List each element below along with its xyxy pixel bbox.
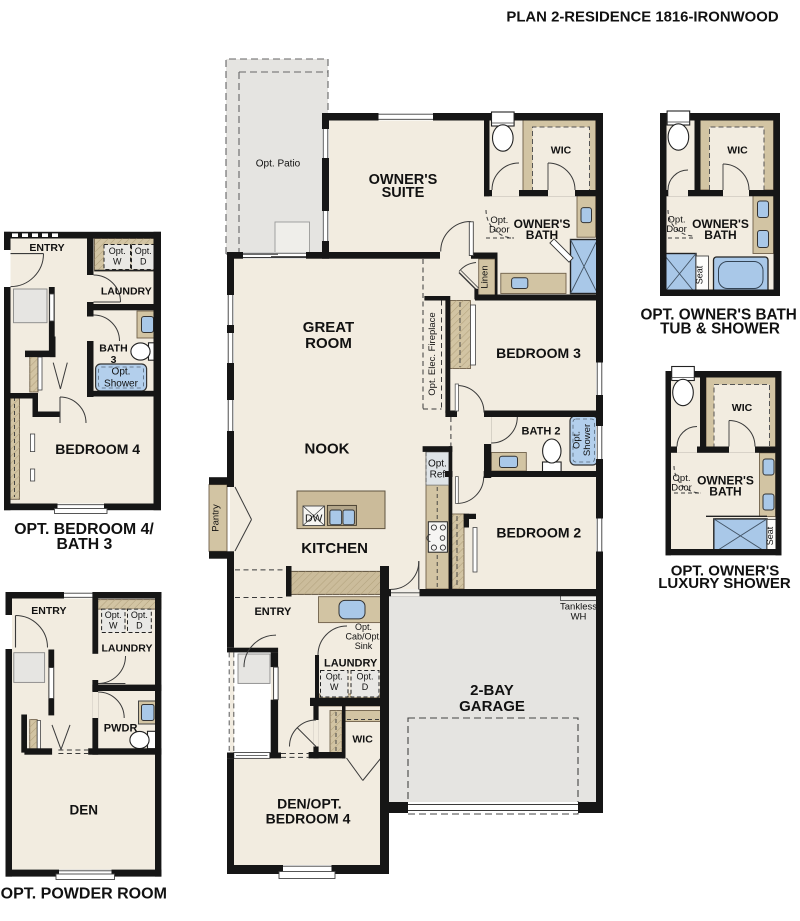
svg-text:Opt.: Opt. [105,610,122,620]
svg-text:LAUNDRY: LAUNDRY [102,643,153,655]
svg-text:ENTRY: ENTRY [29,242,64,254]
svg-text:ROOM: ROOM [305,335,352,352]
svg-text:BATH 3: BATH 3 [56,536,112,553]
svg-text:W: W [109,621,118,631]
svg-text:GREAT: GREAT [303,319,354,336]
svg-text:BEDROOM 2: BEDROOM 2 [496,525,581,541]
svg-text:WIC: WIC [551,145,572,157]
svg-text:Pantry: Pantry [211,504,222,532]
svg-text:Opt.: Opt. [326,672,343,682]
svg-text:D: D [136,621,143,631]
svg-text:ENTRY: ENTRY [254,606,292,618]
svg-text:GARAGE: GARAGE [459,698,525,715]
svg-text:W: W [113,257,122,267]
svg-text:W: W [330,682,339,692]
svg-text:Linen: Linen [480,265,491,288]
svg-text:KITCHEN: KITCHEN [301,540,368,557]
svg-text:SUITE: SUITE [382,185,425,201]
svg-text:Ref: Ref [430,470,446,481]
svg-text:TUB & SHOWER: TUB & SHOWER [660,320,780,337]
svg-text:LAUNDRY: LAUNDRY [101,286,152,298]
svg-text:WH: WH [571,612,587,623]
svg-text:PLAN 2-RESIDENCE 1816-IRONWOOD: PLAN 2-RESIDENCE 1816-IRONWOOD [506,10,778,26]
svg-text:LAUNDRY: LAUNDRY [324,658,378,670]
svg-text:D: D [362,682,369,692]
svg-text:PWDR: PWDR [104,723,138,735]
svg-text:Door: Door [666,224,687,235]
svg-text:3: 3 [111,354,117,366]
svg-text:Opt.: Opt. [112,367,131,378]
svg-text:Opt.: Opt. [131,610,148,620]
svg-text:Opt. Patio: Opt. Patio [256,159,301,170]
svg-text:Opt.: Opt. [109,246,126,256]
svg-text:Opt.: Opt. [356,672,373,682]
svg-text:Opt.: Opt. [572,431,583,449]
svg-text:Opt.: Opt. [355,622,372,632]
svg-text:BEDROOM 4: BEDROOM 4 [55,441,140,457]
svg-text:Door: Door [489,225,510,236]
svg-text:BEDROOM 3: BEDROOM 3 [496,345,581,361]
svg-text:D: D [140,257,147,267]
svg-text:BATH: BATH [99,343,127,355]
svg-text:ENTRY: ENTRY [31,605,66,617]
svg-text:Shower: Shower [582,424,593,456]
svg-text:Sink: Sink [355,641,373,651]
svg-text:NOOK: NOOK [305,441,350,458]
svg-text:Cab/Opt.: Cab/Opt. [345,632,381,642]
svg-text:BATH: BATH [709,485,741,499]
svg-text:Seat: Seat [765,526,775,545]
svg-text:Opt.: Opt. [428,459,447,470]
svg-text:Door: Door [671,483,692,494]
svg-text:OPT. POWDER ROOM: OPT. POWDER ROOM [1,886,167,903]
svg-text:WIC: WIC [352,734,373,746]
svg-text:DEN/OPT.: DEN/OPT. [277,796,342,812]
svg-text:WIC: WIC [727,145,748,157]
svg-text:Opt. Elec. Fireplace: Opt. Elec. Fireplace [427,312,438,395]
svg-text:Shower: Shower [104,379,139,390]
svg-text:DEN: DEN [70,803,99,818]
svg-text:BATH 2: BATH 2 [522,426,561,438]
svg-text:2-BAY: 2-BAY [470,682,514,699]
svg-text:Seat: Seat [695,265,705,284]
svg-text:WIC: WIC [732,402,753,414]
svg-text:Opt.: Opt. [135,246,152,256]
svg-text:DW: DW [305,512,323,524]
svg-text:LUXURY SHOWER: LUXURY SHOWER [658,575,791,592]
svg-text:BATH: BATH [704,228,736,242]
svg-text:BATH: BATH [526,228,558,242]
svg-text:BEDROOM 4: BEDROOM 4 [266,811,351,827]
